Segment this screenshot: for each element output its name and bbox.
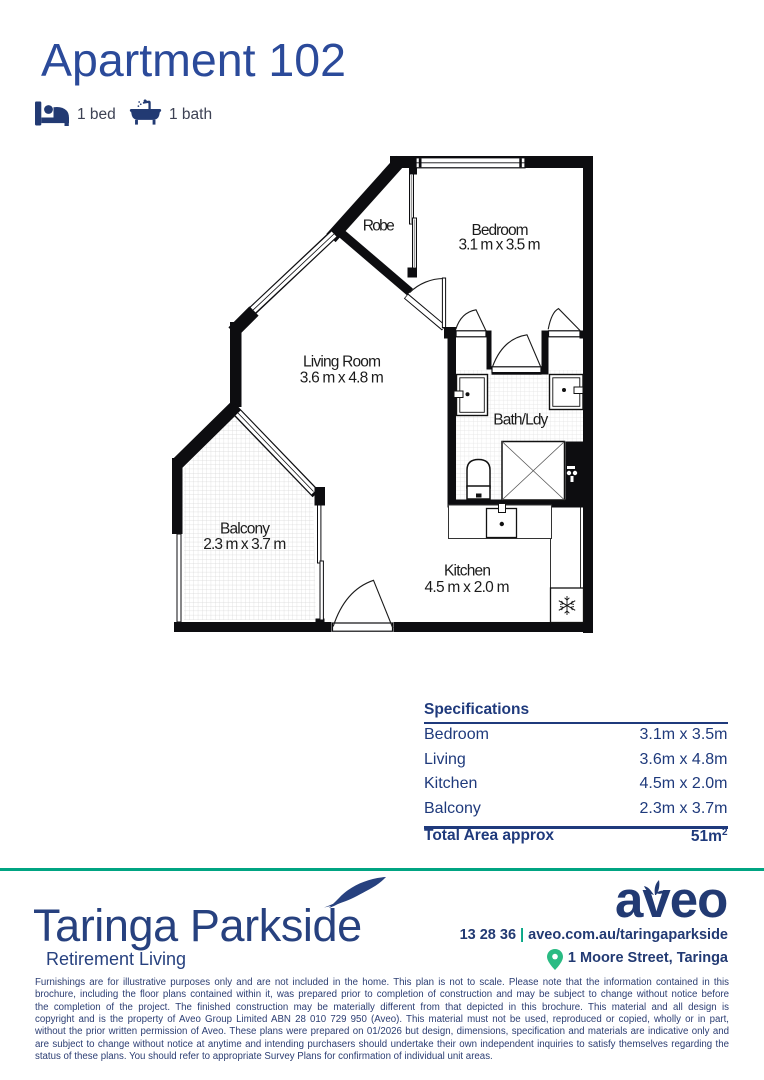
svg-text:3.6 m x 4.8 m: 3.6 m x 4.8 m	[300, 370, 384, 387]
svg-text:4.5 m x 2.0 m: 4.5 m x 2.0 m	[425, 579, 510, 596]
svg-text:Balcony: Balcony	[220, 520, 270, 537]
svg-text:Living Room: Living Room	[303, 354, 381, 371]
svg-text:2.3 m x 3.7 m: 2.3 m x 3.7 m	[203, 536, 286, 553]
svg-text:Robe: Robe	[363, 218, 395, 235]
svg-text:Kitchen: Kitchen	[444, 563, 491, 580]
svg-text:Bath/Ldy: Bath/Ldy	[493, 411, 548, 428]
svg-text:3.1 m x 3.5 m: 3.1 m x 3.5 m	[459, 237, 541, 254]
